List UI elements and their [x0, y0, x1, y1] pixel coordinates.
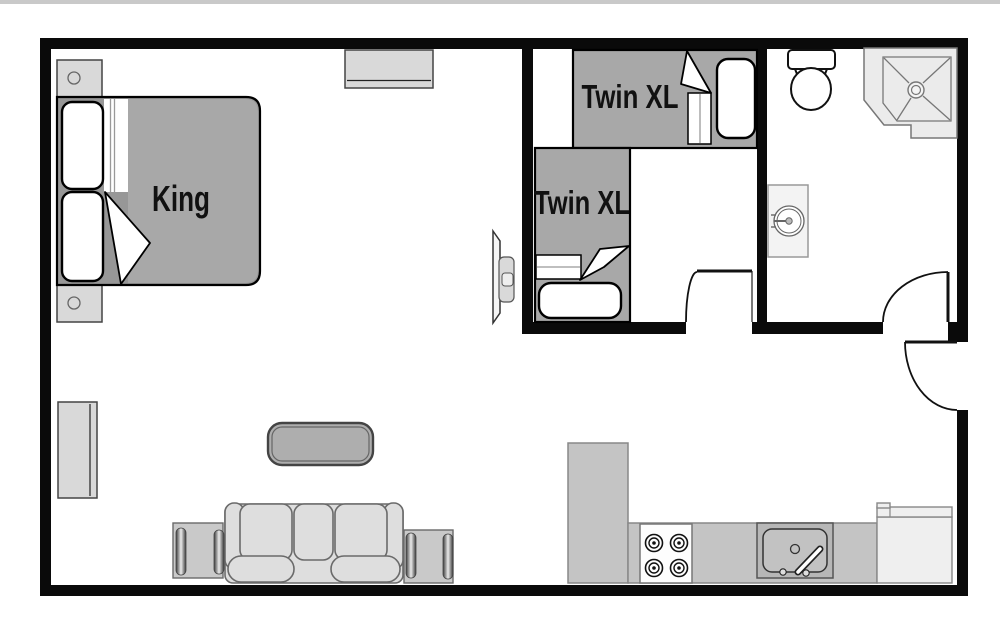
kitchen-tall-cabinet: [568, 443, 628, 583]
dishwasher-body: [877, 517, 952, 583]
wall-left: [40, 38, 51, 596]
wall-bathroom-bottom-stub: [948, 322, 968, 342]
dishwasher: [877, 503, 952, 583]
dishwasher-handle-tab: [877, 503, 890, 508]
wall-top: [40, 38, 968, 49]
faucet-knob-icon: [803, 570, 809, 576]
shower-drain-icon: [908, 82, 924, 98]
sofa-back-cushion: [335, 504, 387, 560]
twin-bed-1-pillow: [717, 59, 755, 138]
coffee-table-top: [268, 423, 373, 465]
twin-room-door: [686, 271, 752, 322]
twin-bed-1-label: Twin XL: [582, 78, 679, 115]
end-table-right: [404, 530, 453, 583]
bathroom-vanity: [768, 185, 808, 257]
toilet: [788, 50, 835, 110]
twin-bed-1: Twin XL: [573, 50, 757, 148]
kitchen-sink: [757, 523, 833, 578]
king-bed: King: [57, 97, 260, 285]
lamp-cylinder: [443, 534, 453, 579]
lamp-cylinder: [406, 533, 416, 578]
wall-right-lower: [957, 410, 968, 596]
corner-shower: [864, 48, 957, 138]
lamp-cylinder: [214, 530, 224, 574]
bathroom-door: [883, 272, 948, 322]
tv-mount-knob: [502, 273, 513, 286]
entry-door: [905, 342, 957, 410]
nightstand-bottom: [57, 285, 102, 322]
twin-room-door-arc: [686, 272, 697, 322]
king-bed-label: King: [152, 178, 210, 219]
end-table-left: [173, 523, 224, 578]
sofa-back-cushion: [294, 504, 333, 560]
sofa-seat-cushion: [228, 556, 294, 582]
toilet-bowl: [791, 68, 831, 110]
wall-bottom: [40, 585, 968, 596]
vanity-drain-icon: [786, 218, 792, 224]
floor-plan-canvas: King: [0, 0, 1000, 640]
bathroom-door-arc: [883, 272, 948, 322]
faucet-knob-icon: [780, 569, 786, 575]
entry-door-arc: [905, 342, 957, 410]
dresser: [345, 50, 433, 88]
sofa-back-cushion: [240, 504, 292, 560]
tv: [493, 231, 514, 323]
kitchen: [568, 443, 952, 583]
twin-bed-2-label: Twin XL: [534, 184, 630, 221]
wall-bathroom-bottom: [752, 322, 883, 334]
coffee-table: [268, 423, 373, 465]
dresser-top: [345, 50, 433, 88]
wall-divider-twin-bath: [757, 49, 767, 334]
king-pillow-bottom: [62, 192, 103, 281]
twin-bed-2: Twin XL: [534, 148, 630, 322]
stove: [640, 524, 692, 583]
top-border-strip: [0, 0, 1000, 4]
sofa: [225, 503, 403, 583]
wall-right-upper: [957, 38, 968, 342]
lamp-cylinder: [176, 528, 186, 575]
wall-shelf: [58, 402, 97, 498]
king-sheet-band: [104, 99, 128, 192]
sofa-seat-cushion: [331, 556, 400, 582]
wall-twinroom-bottom: [522, 322, 686, 334]
king-pillow-top: [62, 102, 103, 189]
floor-plan: King: [0, 0, 1000, 640]
wall-divider-living-twin: [522, 49, 533, 334]
toilet-tank: [788, 50, 835, 69]
twin-bed-2-pillow: [539, 283, 621, 318]
wall-shelf-surface: [58, 402, 97, 498]
nightstand-top: [57, 60, 102, 97]
